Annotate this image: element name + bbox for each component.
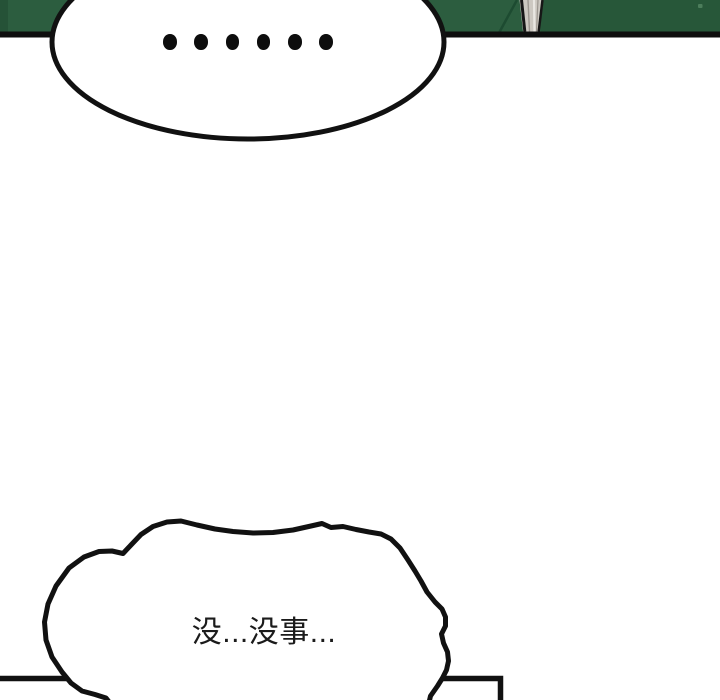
speech-dot: [163, 34, 177, 50]
ellipsis-dots: [163, 34, 333, 50]
ellipsis-bubble-outline: [52, 0, 444, 139]
webtoon-page: 没...没事...: [0, 0, 720, 700]
speech-dot: [288, 34, 302, 50]
bottom-comic-panel: [0, 500, 720, 700]
speech-bubble-outline: [45, 521, 449, 700]
speech-dot: [194, 34, 208, 50]
speech-text: 没...没事...: [192, 618, 337, 648]
ellipsis-speech-bubble: [0, 0, 720, 150]
speech-dot: [226, 34, 240, 50]
speech-dot: [257, 34, 271, 50]
speech-dot: [319, 34, 333, 50]
